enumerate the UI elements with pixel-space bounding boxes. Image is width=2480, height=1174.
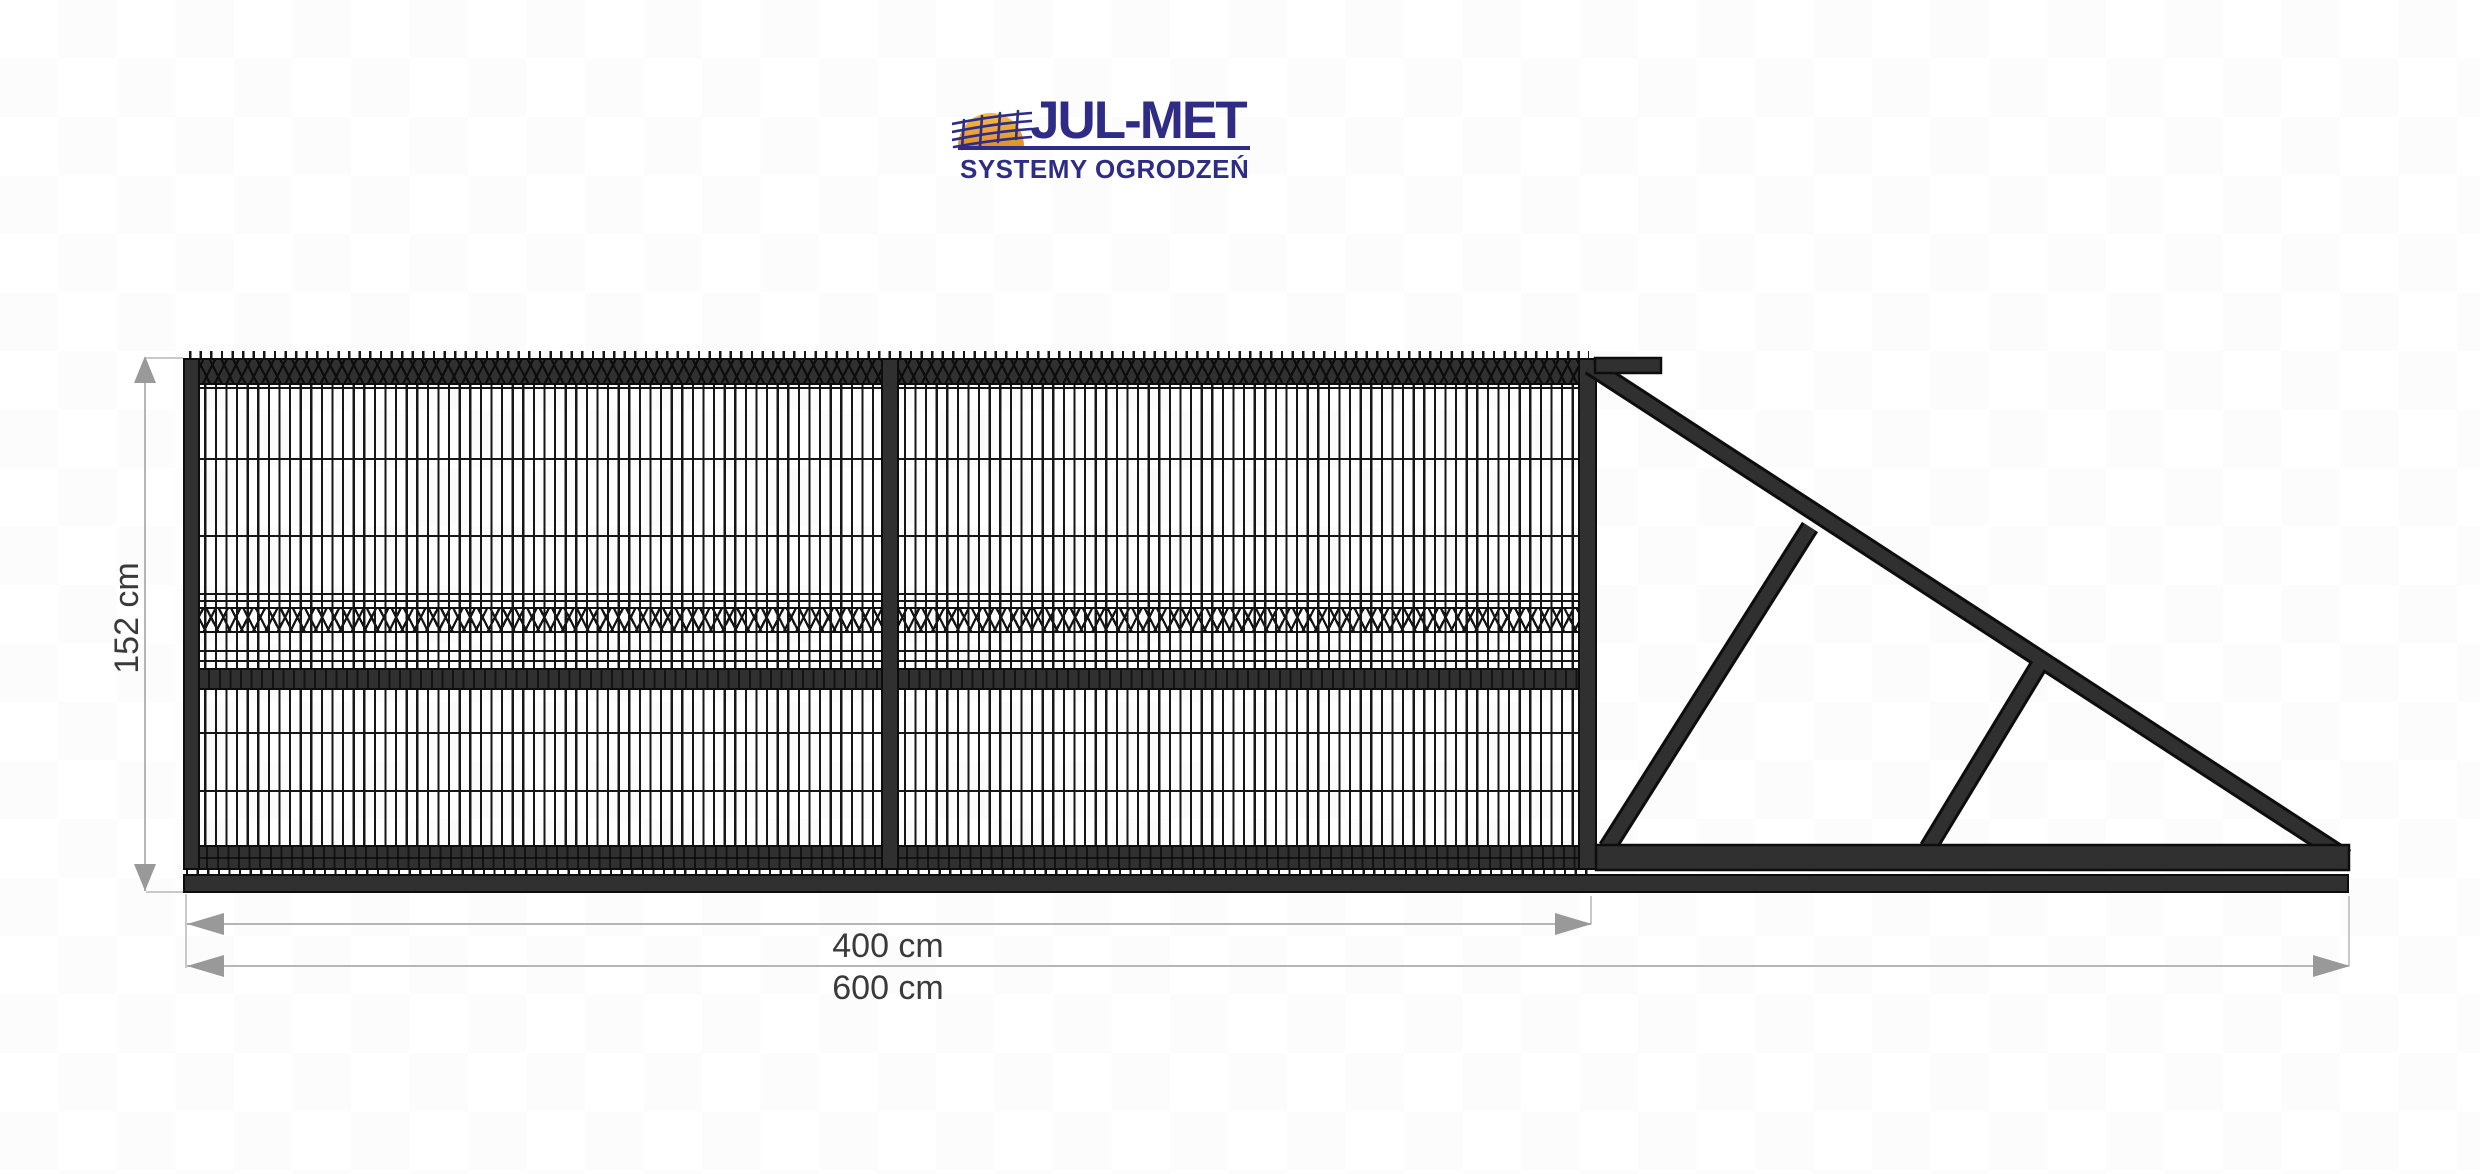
logo-underline bbox=[958, 146, 1250, 150]
arrow-left-icon bbox=[187, 913, 224, 935]
mesh-wire-tips-top bbox=[189, 351, 1589, 358]
logo-tagline: SYSTEMY OGRODZEŃ bbox=[960, 154, 1249, 185]
sun-fence-icon bbox=[952, 100, 1032, 152]
leaf-width-label: 400 cm bbox=[832, 929, 944, 963]
gate-middle-post bbox=[881, 358, 899, 870]
dimension-line bbox=[187, 923, 1591, 925]
total-width-label: 600 cm bbox=[832, 971, 944, 1005]
dimension-line bbox=[187, 965, 2349, 967]
extension-line bbox=[146, 891, 183, 893]
arrow-down-icon bbox=[134, 864, 156, 891]
arrow-up-icon bbox=[134, 356, 156, 383]
truss-bottom-rail bbox=[1596, 845, 2349, 870]
arrow-right-icon bbox=[2313, 955, 2350, 977]
arrow-right-icon bbox=[1555, 913, 1592, 935]
ground-track bbox=[183, 874, 2349, 893]
extension-line bbox=[146, 357, 183, 359]
truss-top-cap bbox=[1595, 358, 1661, 373]
arrow-left-icon bbox=[187, 955, 224, 977]
counterweight-truss bbox=[1580, 350, 2380, 910]
height-dimension-label: 152 cm bbox=[110, 562, 144, 674]
gate-leaf bbox=[183, 358, 1597, 870]
gate-left-post bbox=[183, 358, 200, 870]
logo-title: JUL-MET bbox=[1030, 94, 1246, 147]
product-drawing-canvas: JUL-MET SYSTEMY OGRODZEŃ bbox=[0, 0, 2480, 1174]
julmet-logo: JUL-MET SYSTEMY OGRODZEŃ bbox=[952, 86, 1272, 188]
